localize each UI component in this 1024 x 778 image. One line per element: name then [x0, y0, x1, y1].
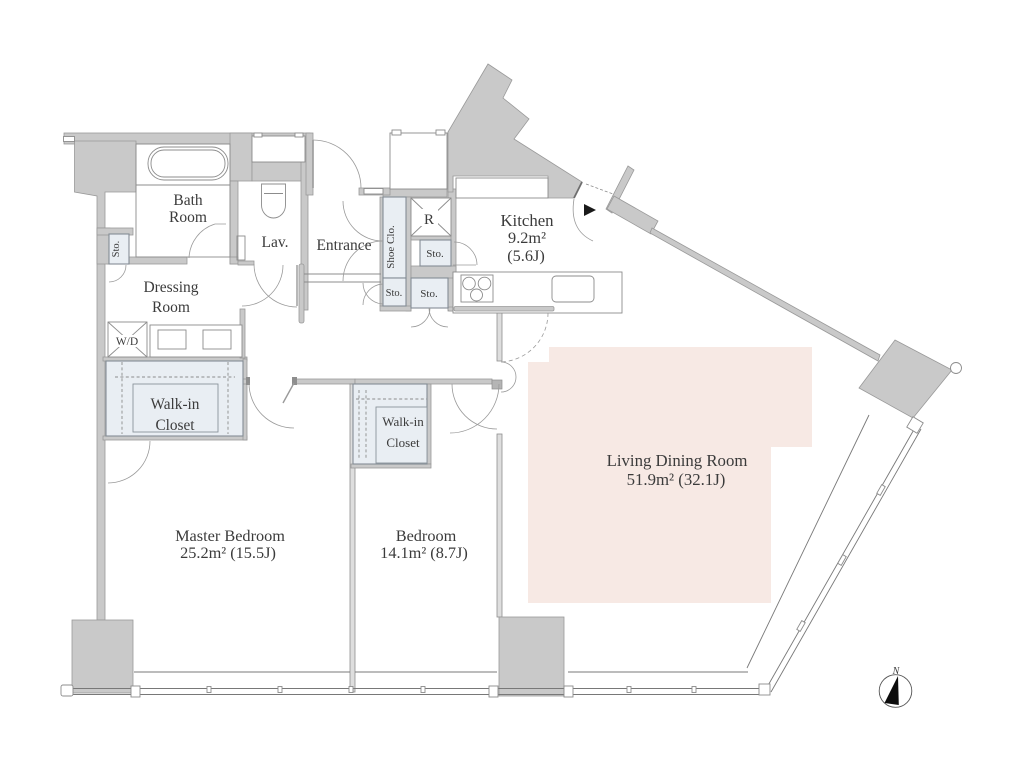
svg-text:Closet: Closet	[386, 435, 420, 450]
svg-text:Sto.: Sto.	[111, 241, 122, 258]
svg-text:(5.6J): (5.6J)	[507, 246, 545, 265]
svg-text:Sto.: Sto.	[426, 248, 444, 260]
svg-text:Closet: Closet	[155, 417, 195, 434]
svg-text:W/D: W/D	[116, 336, 138, 348]
svg-text:25.2m² (15.5J): 25.2m² (15.5J)	[180, 543, 276, 562]
svg-text:Sto.: Sto.	[386, 288, 403, 299]
svg-text:Walk-in: Walk-in	[382, 414, 424, 429]
svg-text:14.1m² (8.7J): 14.1m² (8.7J)	[380, 543, 468, 562]
svg-text:Shoe Clo.: Shoe Clo.	[385, 225, 397, 269]
svg-text:Room: Room	[169, 209, 207, 226]
svg-text:R: R	[424, 212, 434, 228]
svg-text:9.2m²: 9.2m²	[508, 228, 546, 247]
svg-text:Living Dining Room: Living Dining Room	[607, 451, 748, 470]
svg-text:Walk-in: Walk-in	[151, 396, 200, 413]
svg-text:N: N	[892, 666, 901, 677]
svg-text:Dressing: Dressing	[143, 279, 198, 296]
svg-text:Entrance: Entrance	[316, 237, 371, 254]
svg-text:51.9m² (32.1J): 51.9m² (32.1J)	[627, 470, 726, 489]
svg-text:Room: Room	[152, 299, 190, 316]
svg-text:Lav.: Lav.	[262, 234, 289, 251]
svg-text:Bath: Bath	[173, 192, 203, 209]
svg-text:Sto.: Sto.	[420, 288, 438, 300]
